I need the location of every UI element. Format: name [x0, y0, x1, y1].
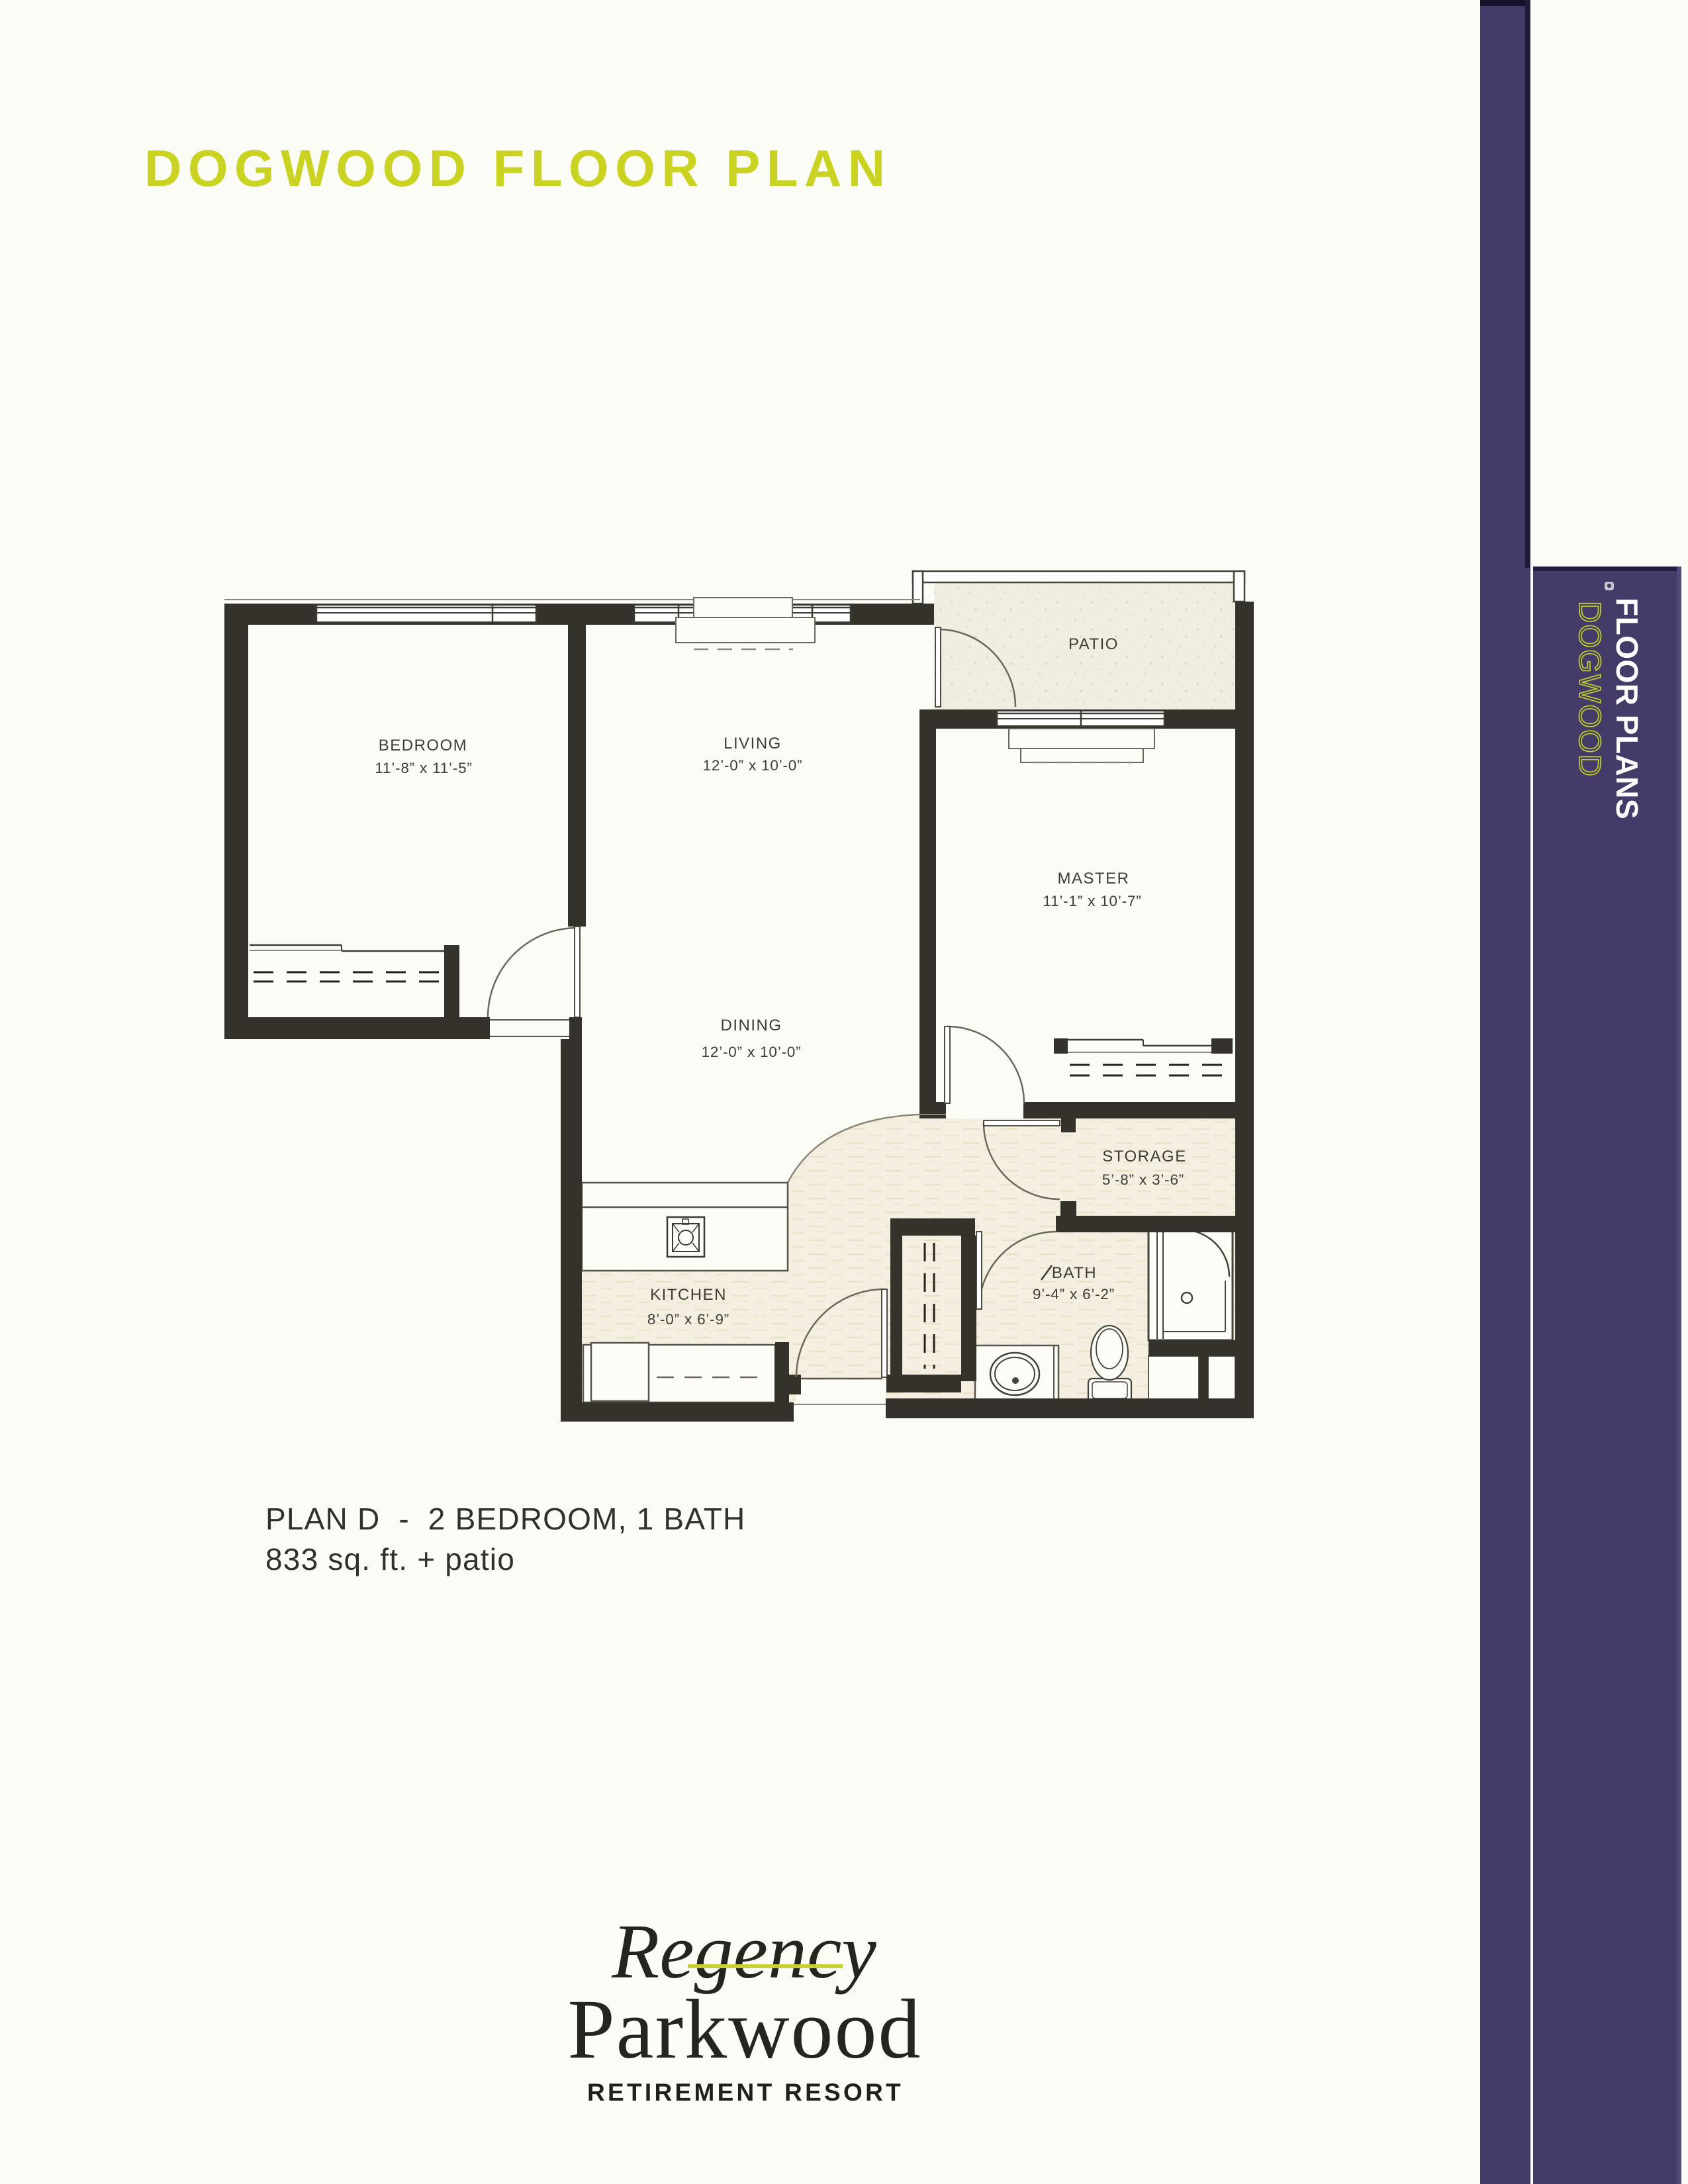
- svg-text:RETIREMENT RESORT: RETIREMENT RESORT: [587, 2079, 904, 2106]
- svg-text:LIVING: LIVING: [724, 735, 782, 752]
- svg-text:FLOOR PLANS: FLOOR PLANS: [1610, 598, 1644, 819]
- svg-text:833 sq. ft. + patio: 833 sq. ft. + patio: [265, 1542, 515, 1576]
- svg-text:PATIO: PATIO: [1068, 635, 1119, 653]
- svg-text:BEDROOM: BEDROOM: [379, 737, 468, 754]
- svg-text:KITCHEN: KITCHEN: [650, 1286, 727, 1304]
- svg-text:8’-0” x 6’-9”: 8’-0” x 6’-9”: [647, 1311, 729, 1328]
- svg-text:9’-4” x 6’-2”: 9’-4” x 6’-2”: [1033, 1286, 1115, 1302]
- svg-text:5’-8” x 3’-6”: 5’-8” x 3’-6”: [1102, 1171, 1184, 1188]
- svg-text:DOGWOOD: DOGWOOD: [1573, 601, 1607, 778]
- svg-text:11’-1” x 10’-7”: 11’-1” x 10’-7”: [1043, 893, 1141, 909]
- svg-text:STORAGE: STORAGE: [1102, 1148, 1186, 1165]
- svg-text:MASTER: MASTER: [1057, 870, 1129, 887]
- svg-text:11’-8” x 11’-5”: 11’-8” x 11’-5”: [375, 760, 472, 776]
- svg-text:PLAN D - 2 BEDROOM, 1 BATH: PLAN D - 2 BEDROOM, 1 BATH: [265, 1502, 745, 1536]
- svg-text:DINING: DINING: [721, 1017, 782, 1034]
- svg-text:BATH: BATH: [1052, 1264, 1097, 1282]
- svg-text:12’-0” x 10’-0”: 12’-0” x 10’-0”: [703, 757, 803, 774]
- svg-text:Parkwood: Parkwood: [567, 1982, 921, 2076]
- svg-text:12’-0” x 10’-0”: 12’-0” x 10’-0”: [702, 1044, 802, 1060]
- svg-text:DOGWOOD FLOOR PLAN: DOGWOOD FLOOR PLAN: [144, 139, 892, 197]
